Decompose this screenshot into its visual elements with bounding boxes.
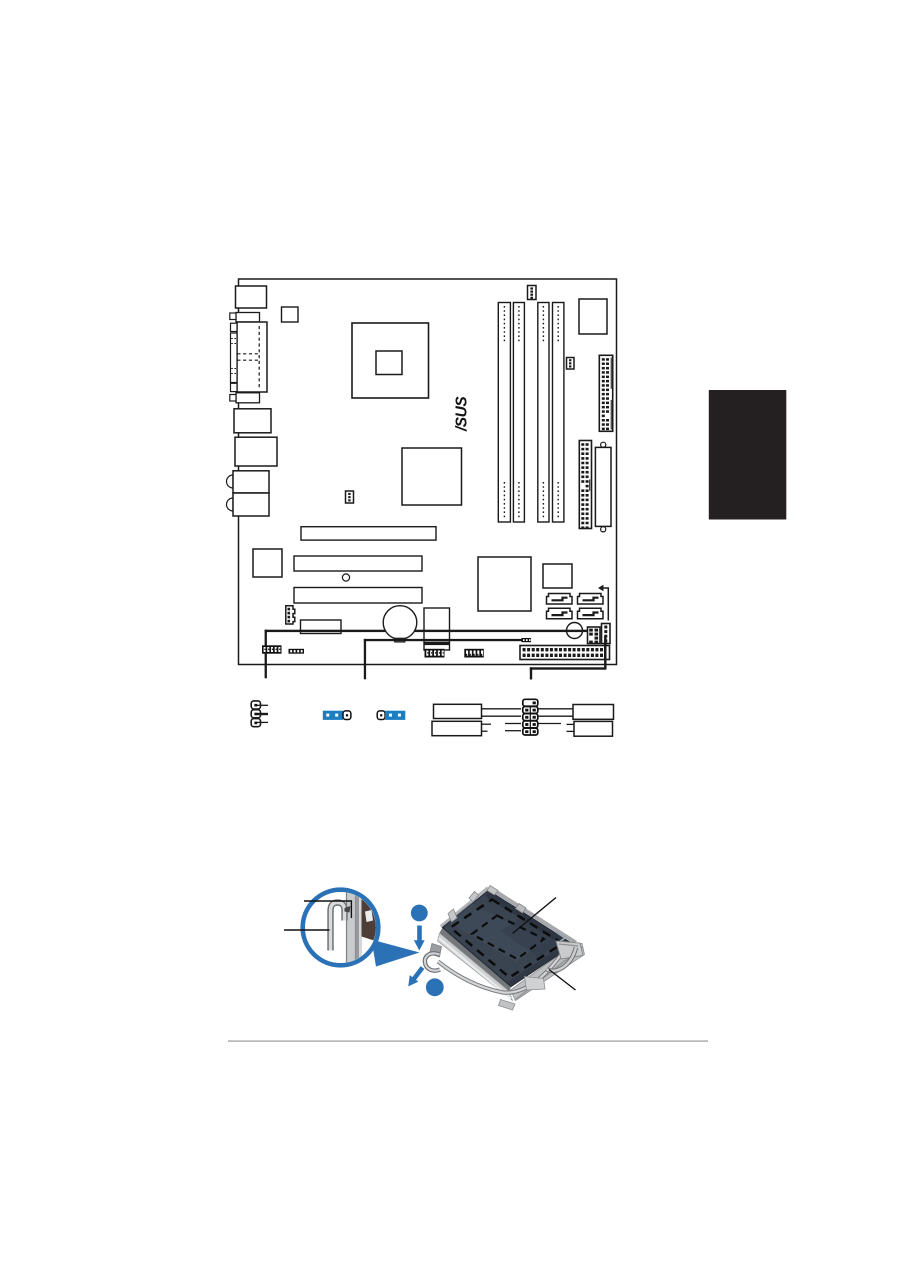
svg-text:/SUS: /SUS xyxy=(454,396,471,432)
